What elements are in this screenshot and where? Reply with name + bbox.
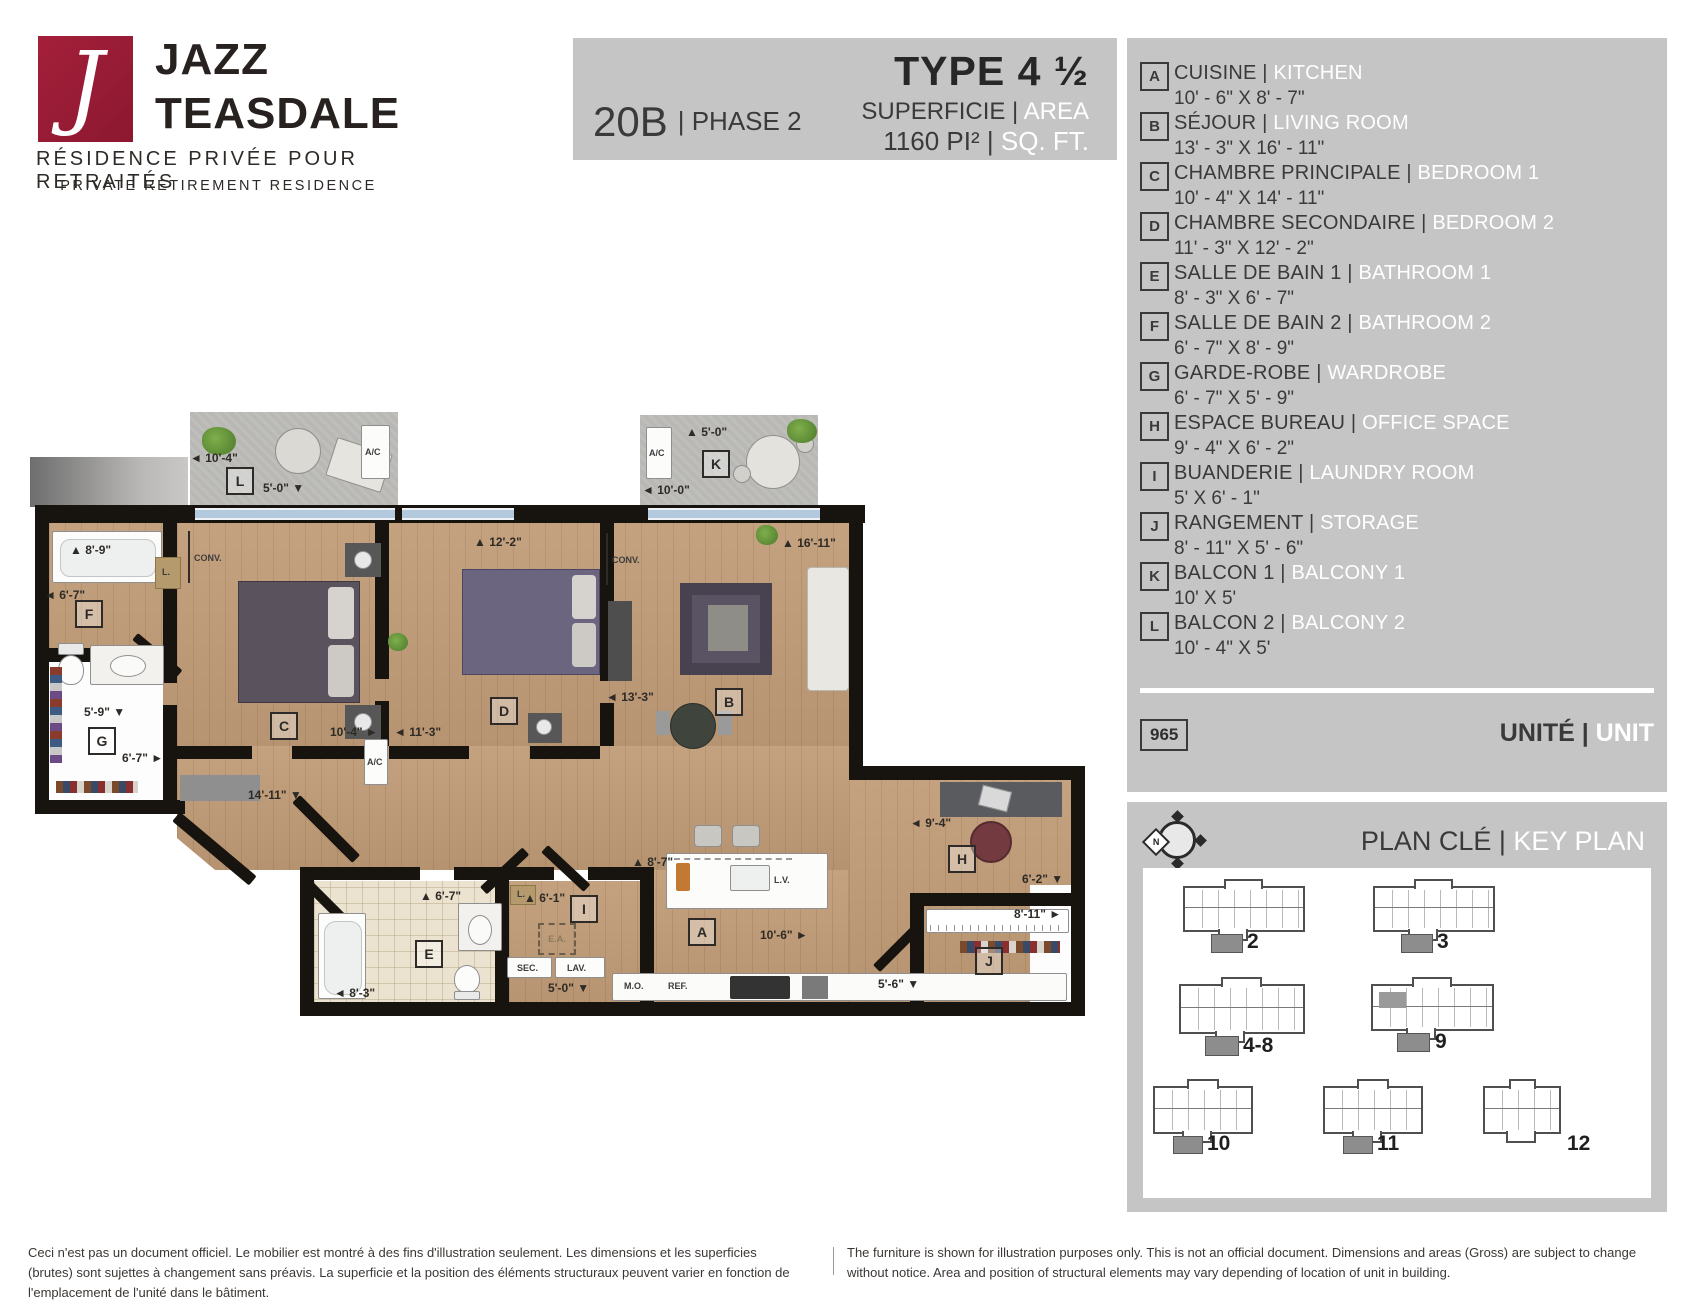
key-plan-panel: N PLAN CLÉ | KEY PLAN 2 3 4-8 xyxy=(1127,802,1667,1212)
dim-bedroom1-length: 14'-11" ▼ xyxy=(248,788,302,802)
ac-unit-balcony-l: A/C xyxy=(361,425,390,479)
unit-type-title: TYPE 4 ½ xyxy=(894,48,1089,95)
window xyxy=(195,508,395,520)
convector-line xyxy=(606,533,608,585)
keyplan-floor-11-marker xyxy=(1343,1136,1373,1154)
keyplan-floor-9-unit-highlight xyxy=(1379,992,1406,1008)
dim-balcony-k-width: ◄ 10'-0" xyxy=(642,483,690,497)
wall xyxy=(530,746,600,759)
wall xyxy=(163,705,177,800)
legend-row-living: B SÉJOUR | LIVING ROOM 13' - 3" X 16' - … xyxy=(1127,112,1667,162)
keyplan-floor-9-label: 9 xyxy=(1435,1030,1447,1054)
legend-letter-h: H xyxy=(1140,412,1169,441)
room-label-kitchen: A xyxy=(688,918,716,946)
unit-phase: | PHASE 2 xyxy=(678,106,802,136)
legend-letter-l: L xyxy=(1140,612,1169,641)
bathtub-basin xyxy=(324,921,362,995)
legend-letter-g: G xyxy=(1140,362,1169,391)
wall xyxy=(35,505,49,814)
legend-letter-e: E xyxy=(1140,262,1169,291)
shoe-row xyxy=(56,781,138,793)
hanging-clothes xyxy=(50,667,62,763)
microwave-label: M.O. xyxy=(624,981,644,991)
plant-icon xyxy=(787,419,817,443)
window xyxy=(402,508,514,520)
area-unit-en: SQ. FT. xyxy=(1001,126,1089,156)
keyplan-floor-4-8-marker xyxy=(1205,1036,1239,1056)
wall xyxy=(849,505,863,780)
floor-corridor xyxy=(177,746,849,870)
legend-letter-d: D xyxy=(1140,212,1169,241)
plant-icon xyxy=(756,525,778,545)
area-label: SUPERFICIE | AREA xyxy=(861,98,1089,126)
tv-console xyxy=(608,601,632,681)
footer-divider xyxy=(833,1247,834,1275)
dim-bedroom2-top: ▲ 12'-2" xyxy=(474,535,522,549)
logo-mark: J xyxy=(38,36,133,142)
keyplan-floor-11-label: 11 xyxy=(1377,1132,1399,1156)
dim-kitchen-depth: ▲ 8'-7" xyxy=(632,855,673,869)
dim-living-width: ◄ 13'-3" xyxy=(606,690,654,704)
lamp-icon xyxy=(354,551,372,569)
dishwasher-label: L.V. xyxy=(774,875,790,885)
dim-storage-width: 6'-2" ▼ xyxy=(1022,872,1063,886)
keyplan-floor-10-marker xyxy=(1173,1136,1203,1154)
linen-closet-f: L. xyxy=(155,557,181,589)
ac-unit-balcony-k: A/C xyxy=(646,427,672,479)
wall xyxy=(863,766,1071,780)
keyplan-floor-11-outline[interactable] xyxy=(1323,1086,1423,1134)
toilet-tank xyxy=(454,991,480,1000)
keyplan-floor-3-marker xyxy=(1401,934,1433,953)
window xyxy=(648,508,820,520)
dim-bedroom1-width: 10'-4" ► xyxy=(330,725,378,739)
disclaimer-en: The furniture is shown for illustration … xyxy=(847,1243,1662,1283)
sofa xyxy=(807,567,849,691)
room-label-wardrobe: G xyxy=(88,727,116,755)
dryer: SEC. xyxy=(507,957,552,978)
keyplan-floor-4-8-outline[interactable] xyxy=(1179,984,1305,1034)
water-heater: E.A. xyxy=(538,923,576,955)
exterior-concrete-shadow xyxy=(30,457,188,507)
convector-line xyxy=(188,531,190,583)
island-stool xyxy=(694,825,722,847)
sink-basin xyxy=(110,655,146,677)
room-label-balcony2: L xyxy=(226,467,254,495)
hanger-rail xyxy=(930,925,1065,931)
floor-plan: A/C A/C xyxy=(30,405,1090,1021)
unit-number-badge: 965 xyxy=(1140,719,1188,751)
room-label-living: B xyxy=(715,688,743,716)
wall xyxy=(300,867,420,880)
wall xyxy=(910,893,1071,906)
legend-letter-k: K xyxy=(1140,562,1169,591)
legend-row-balcony1: K BALCON 1 | BALCONY 1 10' X 5' xyxy=(1127,562,1667,612)
dim-bathroom-e-depth: ▲ 6'-7" xyxy=(420,889,461,903)
wall xyxy=(600,703,614,746)
dining-chair xyxy=(656,711,670,735)
pillow xyxy=(328,645,354,697)
wall xyxy=(35,800,185,814)
toilet-icon xyxy=(454,965,480,993)
kitchen-sink xyxy=(730,865,770,891)
legend-row-balcony2: L BALCON 2 | BALCONY 2 10' - 4" X 5' xyxy=(1127,612,1667,662)
legend-row-storage: J RANGEMENT | STORAGE 8' - 11" X 5' - 6" xyxy=(1127,512,1667,562)
office-chair xyxy=(970,821,1012,863)
room-label-storage: J xyxy=(975,947,1003,975)
brochure-page: J JAZZ TEASDALE RÉSIDENCE PRIVÉE POUR RE… xyxy=(0,0,1690,1306)
small-appliance xyxy=(802,976,828,999)
disclaimer-fr: Ceci n'est pas un document officiel. Le … xyxy=(28,1243,804,1303)
dim-laundry-width: 5'-0" ▼ xyxy=(548,981,589,995)
wall xyxy=(1071,766,1085,1016)
convector-label: CONV. xyxy=(194,553,222,563)
legend-row-laundry: I BUANDERIE | LAUNDRY ROOM 5' X 6' - 1" xyxy=(1127,462,1667,512)
dining-table xyxy=(670,703,716,749)
legend-row-bedroom2: D CHAMBRE SECONDAIRE | BEDROOM 2 11' - 3… xyxy=(1127,212,1667,262)
keyplan-floor-12-label: 12 xyxy=(1567,1132,1590,1156)
dim-storage-bottom: 5'-6" ▼ xyxy=(878,977,919,991)
legend-letter-f: F xyxy=(1140,312,1169,341)
keyplan-floor-2-label: 2 xyxy=(1247,930,1259,954)
dim-wardrobe-width: 5'-9" ▼ xyxy=(84,705,125,719)
room-label-laundry: I xyxy=(570,895,598,923)
wall xyxy=(177,746,252,759)
dim-bathroom-e-width: ◄ 8'-3" xyxy=(334,986,375,1000)
toilet-tank xyxy=(58,643,84,655)
dim-storage-length: 8'-11" ► xyxy=(1014,907,1061,921)
dim-wardrobe-depth: 6'-7" ► xyxy=(122,751,163,765)
unit-header-panel: 20B| PHASE 2 TYPE 4 ½ SUPERFICIE | AREA … xyxy=(573,38,1117,160)
area-label-en: AREA xyxy=(1024,98,1089,125)
dim-kitchen-width: 10'-6" ► xyxy=(760,928,808,942)
room-label-bedroom1: C xyxy=(270,712,298,740)
coffee-table xyxy=(708,605,748,651)
stove-icon xyxy=(730,976,790,999)
legend-row-bathroom2: F SALLE DE BAIN 2 | BATHROOM 2 6' - 7" X… xyxy=(1127,312,1667,362)
keyplan-floor-2-marker xyxy=(1211,934,1243,953)
balcony-table xyxy=(746,435,800,489)
keyplan-floor-3-outline[interactable] xyxy=(1373,886,1495,932)
washer: LAV. xyxy=(555,957,605,978)
legend-row-kitchen: A CUISINE | KITCHEN 10' - 6" X 8' - 7" xyxy=(1127,62,1667,112)
balcony-chair xyxy=(733,465,751,483)
legend-row-bathroom1: E SALLE DE BAIN 1 | BATHROOM 1 8' - 3" X… xyxy=(1127,262,1667,312)
dim-laundry-depth: ▲ 6'-1" xyxy=(524,891,565,905)
wall xyxy=(300,1002,1085,1016)
dim-bathroom-f-depth: ◄ 6'-7" xyxy=(44,588,85,602)
keyplan-floor-9-outline[interactable] xyxy=(1371,984,1494,1031)
balcony-table xyxy=(275,428,321,474)
island-stool xyxy=(732,825,760,847)
unit-label: UNITÉ | UNIT xyxy=(1500,719,1654,748)
wall xyxy=(389,746,469,759)
dim-balcony-k-depth: ▲ 5'-0" xyxy=(686,425,727,439)
keyplan-floor-12-outline[interactable] xyxy=(1483,1086,1561,1134)
legend-letter-c: C xyxy=(1140,162,1169,191)
pillow xyxy=(328,587,354,639)
room-label-bedroom2: D xyxy=(490,697,518,725)
cutting-board xyxy=(676,863,690,891)
sink-basin xyxy=(468,915,492,945)
lamp-icon xyxy=(536,719,552,735)
room-label-office: H xyxy=(948,845,976,873)
key-plan-canvas: 2 3 4-8 9 10 xyxy=(1143,868,1651,1198)
keyplan-floor-4-8-label: 4-8 xyxy=(1243,1034,1273,1058)
fridge-label: REF. xyxy=(668,981,688,991)
key-plan-title: PLAN CLÉ | KEY PLAN xyxy=(1361,826,1645,857)
wall xyxy=(292,746,375,759)
convector-label: CONV. xyxy=(612,555,640,565)
legend-row-wardrobe: G GARDE-ROBE | WARDROBE 6' - 7" X 5' - 9… xyxy=(1127,362,1667,412)
keyplan-floor-10-label: 10 xyxy=(1207,1132,1230,1156)
brand-name-line2: TEASDALE xyxy=(155,92,400,136)
keyplan-floor-9-marker xyxy=(1397,1033,1430,1052)
dim-bedroom2-width: ◄ 11'-3" xyxy=(394,725,441,739)
brand-name-line1: JAZZ xyxy=(155,38,269,82)
counter-dashed-edge xyxy=(674,858,792,860)
room-label-bathroom1: E xyxy=(415,940,443,968)
room-label-bathroom2: F xyxy=(75,600,103,628)
dim-office-width: ◄ 9'-4" xyxy=(910,816,951,830)
pillow xyxy=(572,575,596,619)
dim-balcony-l-width: ◄ 10'-4" xyxy=(190,451,238,465)
keyplan-floor-10-outline[interactable] xyxy=(1153,1086,1253,1134)
legend-letter-j: J xyxy=(1140,512,1169,541)
legend-letter-i: I xyxy=(1140,462,1169,491)
unit-code: 20B| PHASE 2 xyxy=(593,98,802,146)
unit-number-row: 965 UNITÉ | UNIT xyxy=(1140,717,1654,753)
area-value: 1160 PI² | SQ. FT. xyxy=(883,126,1089,157)
compass-icon: N xyxy=(1149,812,1205,868)
legend-letter-b: B xyxy=(1140,112,1169,141)
legend-letter-a: A xyxy=(1140,62,1169,91)
room-legend-panel: A CUISINE | KITCHEN 10' - 6" X 8' - 7" B… xyxy=(1127,38,1667,792)
plant-icon xyxy=(388,633,408,651)
dim-balcony-l-depth: 5'-0" ▼ xyxy=(263,481,304,495)
room-label-balcony1: K xyxy=(702,450,730,478)
logo-j-glyph: J xyxy=(67,40,104,132)
legend-divider xyxy=(1140,688,1654,693)
legend-row-office: H ESPACE BUREAU | OFFICE SPACE 9' - 4" X… xyxy=(1127,412,1667,462)
ac-unit-bedrooms: A/C xyxy=(364,739,388,785)
pillow xyxy=(572,623,596,667)
legend-row-bedroom1: C CHAMBRE PRINCIPALE | BEDROOM 1 10' - 4… xyxy=(1127,162,1667,212)
dim-living-length: ▲ 16'-11" xyxy=(782,536,836,550)
dim-bathroom-f-width: ▲ 8'-9" xyxy=(70,543,111,557)
keyplan-floor-3-label: 3 xyxy=(1437,930,1449,954)
brand-tagline-en: PRIVATE RETIREMENT RESIDENCE xyxy=(36,178,401,194)
keyplan-floor-2-outline[interactable] xyxy=(1183,886,1305,932)
